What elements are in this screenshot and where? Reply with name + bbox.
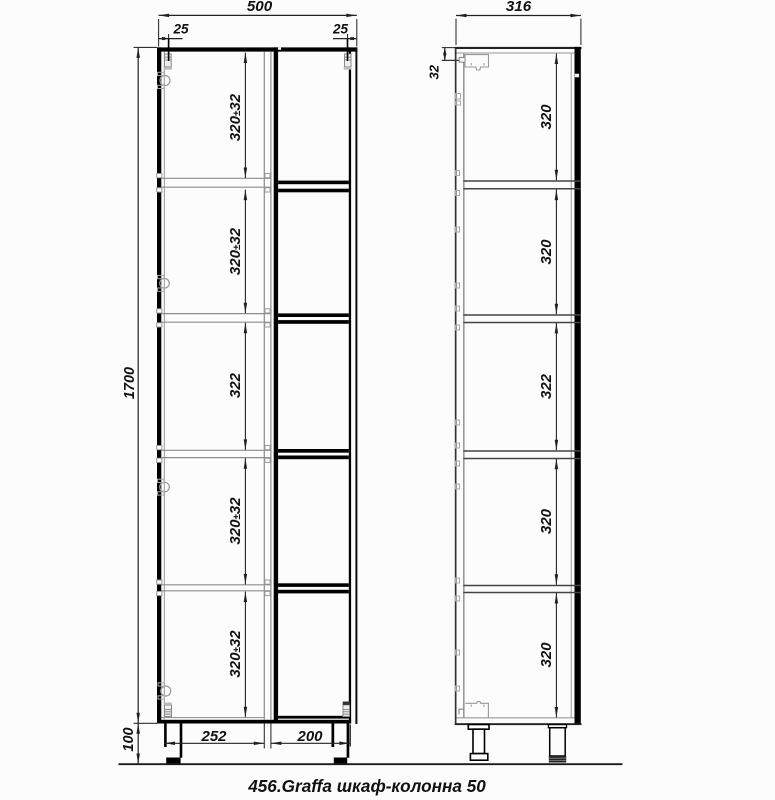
- svg-text:320: 320: [538, 104, 555, 130]
- svg-text:252: 252: [200, 728, 227, 745]
- svg-text:1700: 1700: [122, 367, 138, 399]
- svg-text:456.Graffa шкаф-колонна 50: 456.Graffa шкаф-колонна 50: [247, 776, 486, 796]
- svg-text:32: 32: [427, 64, 442, 79]
- svg-text:320±32: 320±32: [227, 497, 244, 545]
- svg-text:320: 320: [538, 239, 555, 265]
- svg-text:322: 322: [227, 372, 244, 398]
- svg-text:320±32: 320±32: [227, 93, 244, 141]
- svg-text:320±32: 320±32: [227, 630, 244, 678]
- svg-text:500: 500: [247, 0, 273, 15]
- svg-text:320±32: 320±32: [227, 227, 244, 275]
- svg-text:320: 320: [538, 508, 555, 534]
- svg-text:200: 200: [296, 728, 323, 745]
- svg-text:320: 320: [538, 642, 555, 668]
- svg-text:25: 25: [172, 22, 189, 37]
- svg-text:322: 322: [538, 373, 555, 399]
- svg-text:316: 316: [506, 0, 532, 15]
- svg-text:100: 100: [121, 727, 137, 751]
- svg-text:25: 25: [332, 22, 349, 37]
